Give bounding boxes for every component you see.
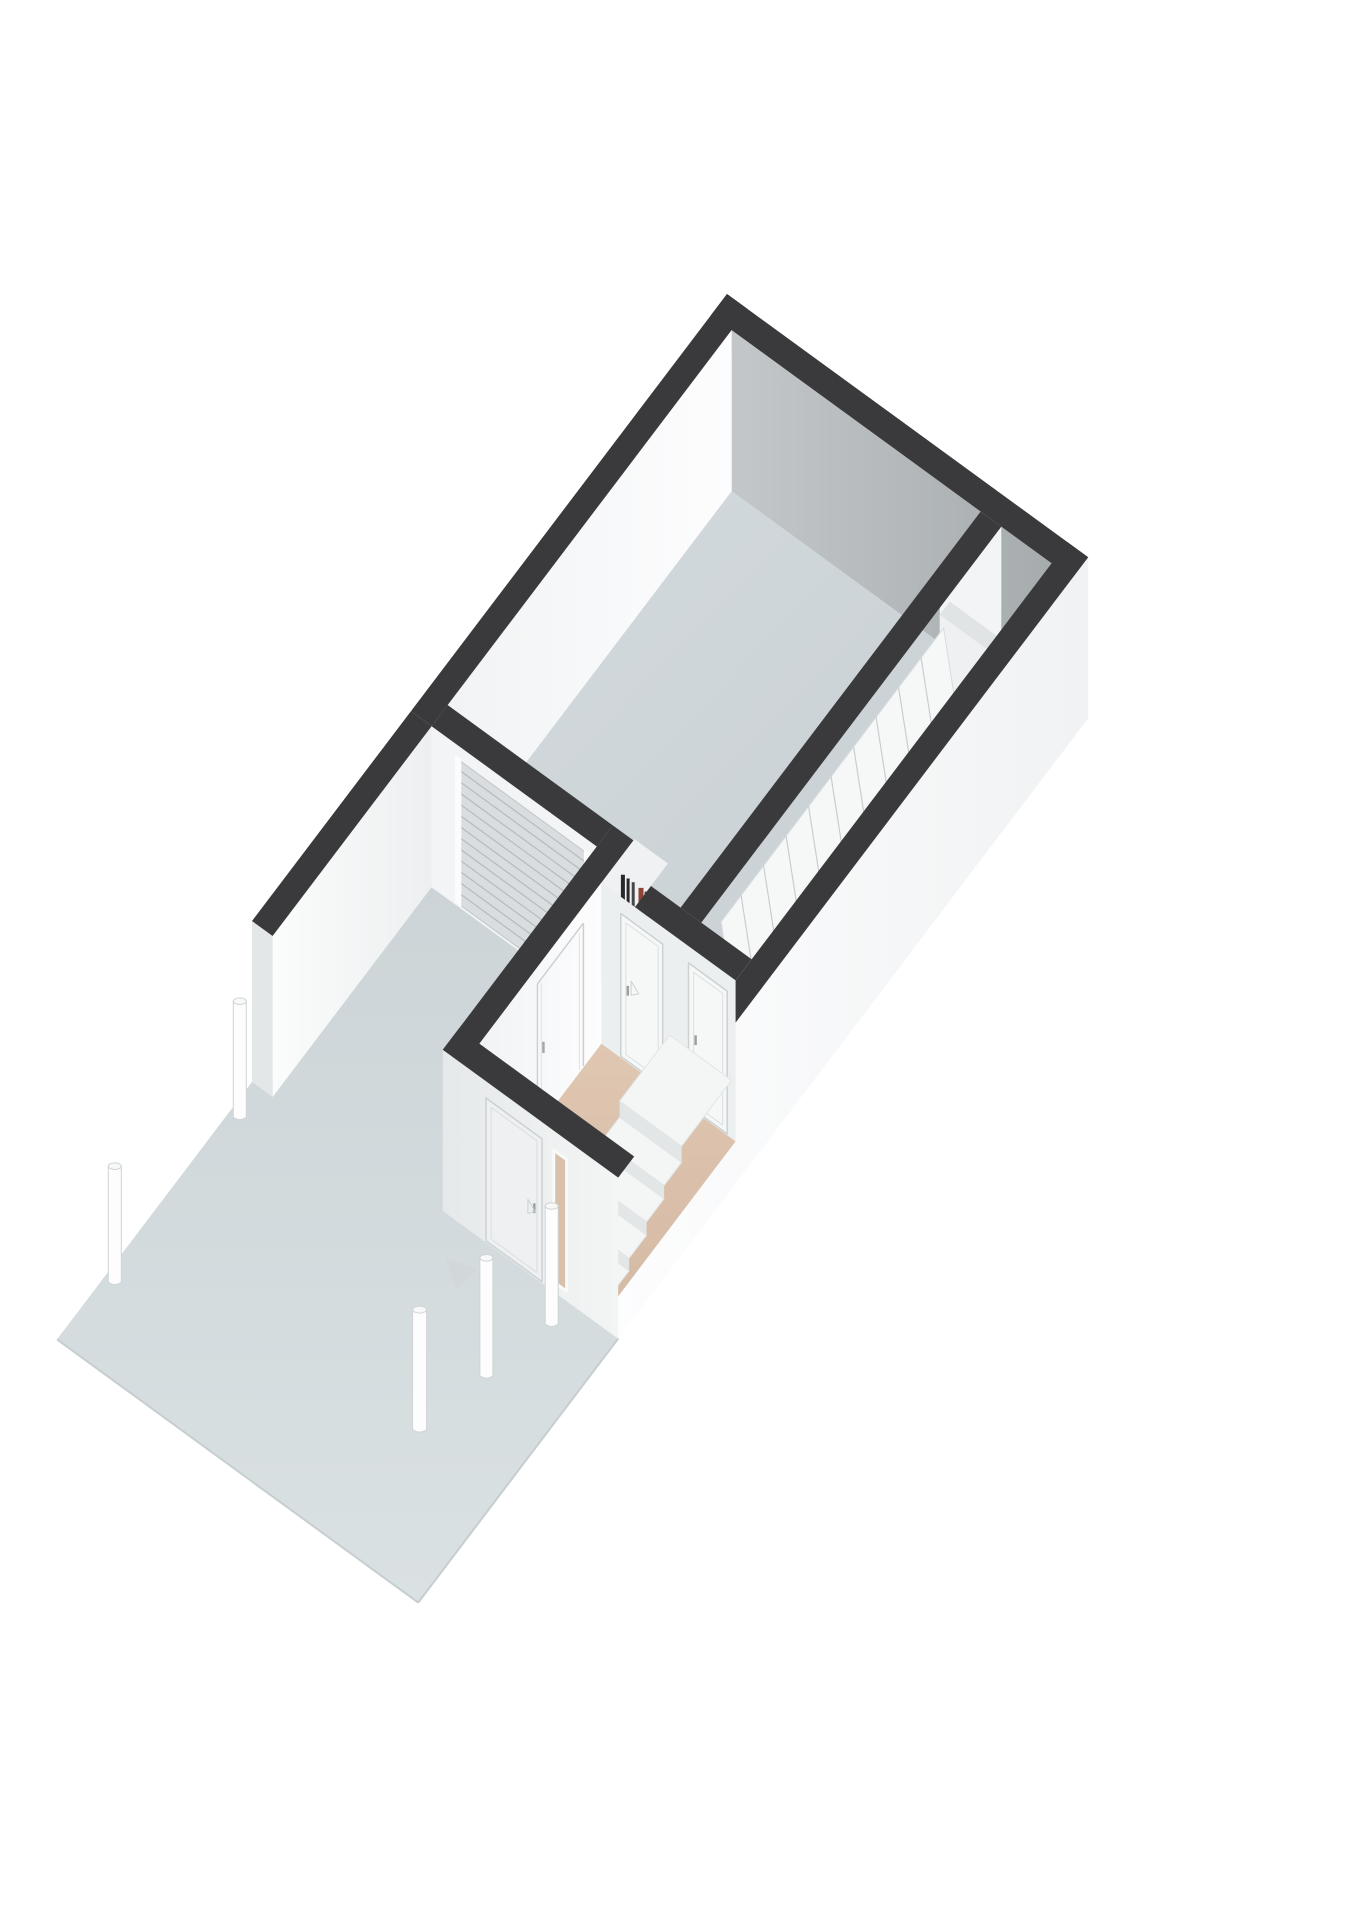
floorplan-canvas: [0, 0, 1358, 1920]
scene-root: [57, 294, 1088, 1603]
fence-post: [413, 1306, 427, 1432]
fence-post-top: [233, 998, 246, 1005]
fence-post: [108, 1163, 121, 1285]
fence-post-top: [480, 1255, 493, 1262]
fence-post-top: [545, 1203, 558, 1210]
fence-post: [233, 998, 246, 1120]
boundary-wall-endcap: [252, 921, 273, 1097]
fence-post-body: [233, 1001, 246, 1119]
fence-post-top: [108, 1163, 121, 1170]
fence-post: [545, 1203, 558, 1327]
fence-post-body: [545, 1206, 558, 1327]
garage-door-jamb-left: [455, 754, 461, 907]
floorplan-3d-view: [0, 0, 1358, 1920]
fence-post-top: [413, 1306, 427, 1313]
fence-post-body: [108, 1166, 121, 1285]
fence-post-body: [480, 1258, 493, 1379]
fence-post: [480, 1255, 493, 1379]
fence-post-body: [413, 1310, 427, 1433]
